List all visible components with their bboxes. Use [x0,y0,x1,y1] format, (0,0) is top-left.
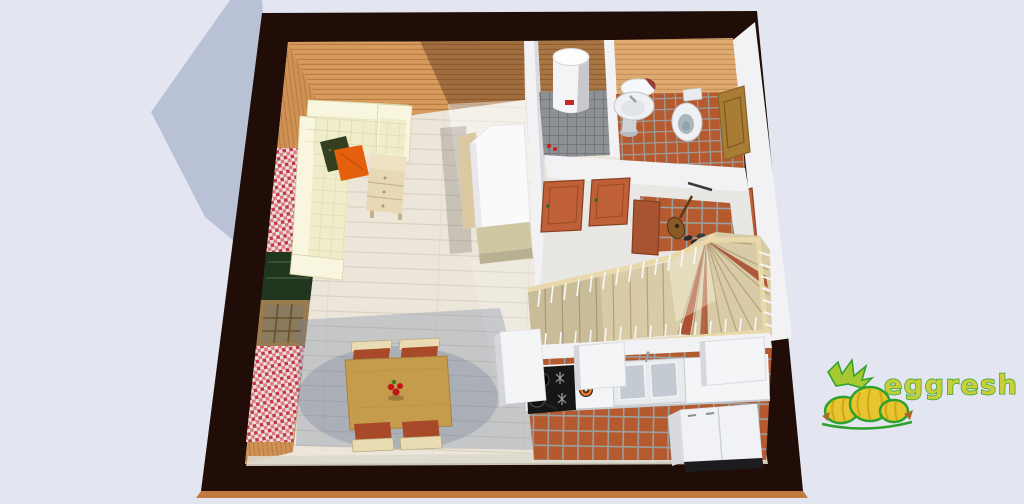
render-canvas: eggresh [0,0,1024,504]
vase-leaves [392,380,396,384]
door-leaf [718,86,750,160]
cabinet-top [700,337,766,386]
berry-right-icon [880,400,908,422]
sink-bowl [621,100,645,116]
cabinet-top [574,342,626,390]
chair-back [352,438,394,452]
red-item [547,144,551,148]
heater-label [565,100,574,105]
wall-cabinet-left [574,342,626,390]
door-handle [594,198,598,202]
kitchen [494,329,772,472]
logo-wordmark: eggresh [884,370,1018,401]
base-strip [196,491,808,498]
tall-cabinet [494,329,546,408]
sink-basin-right [650,362,678,398]
heater-body-shade [577,57,589,112]
hall-door-2 [589,178,630,226]
cabinet-top [500,329,546,404]
side-chest [366,153,407,220]
pillow-dot [329,149,332,152]
window-pane [261,305,305,343]
door-handle [546,204,550,208]
guitar-hole [675,224,679,228]
wall-cabinet-right [700,337,766,386]
chair-bottom-right [400,420,442,450]
faucet-head [646,351,649,354]
toilet-tank [683,88,702,101]
chest-knob [383,191,386,194]
chest-knob [382,205,385,208]
chair-back [400,436,442,450]
bathroom-door [718,86,750,160]
vase-flower [397,383,403,389]
water-heater [553,49,589,114]
cabinet-shade [632,200,660,255]
chest-front [366,168,405,214]
heater-top [553,49,589,66]
refrigerator [668,404,764,472]
vase-flower [388,384,394,390]
hall-cabinet-door [632,200,660,255]
red-item [553,147,557,151]
chest-knob [384,177,387,180]
vase-flower [392,388,399,395]
floor-plan-render: eggresh [0,0,1024,504]
toilet-water [682,121,690,131]
hall-door-1 [541,180,584,232]
chest-leg [370,210,374,218]
chair-bottom-left [352,422,394,452]
vase-shadow [388,395,404,401]
